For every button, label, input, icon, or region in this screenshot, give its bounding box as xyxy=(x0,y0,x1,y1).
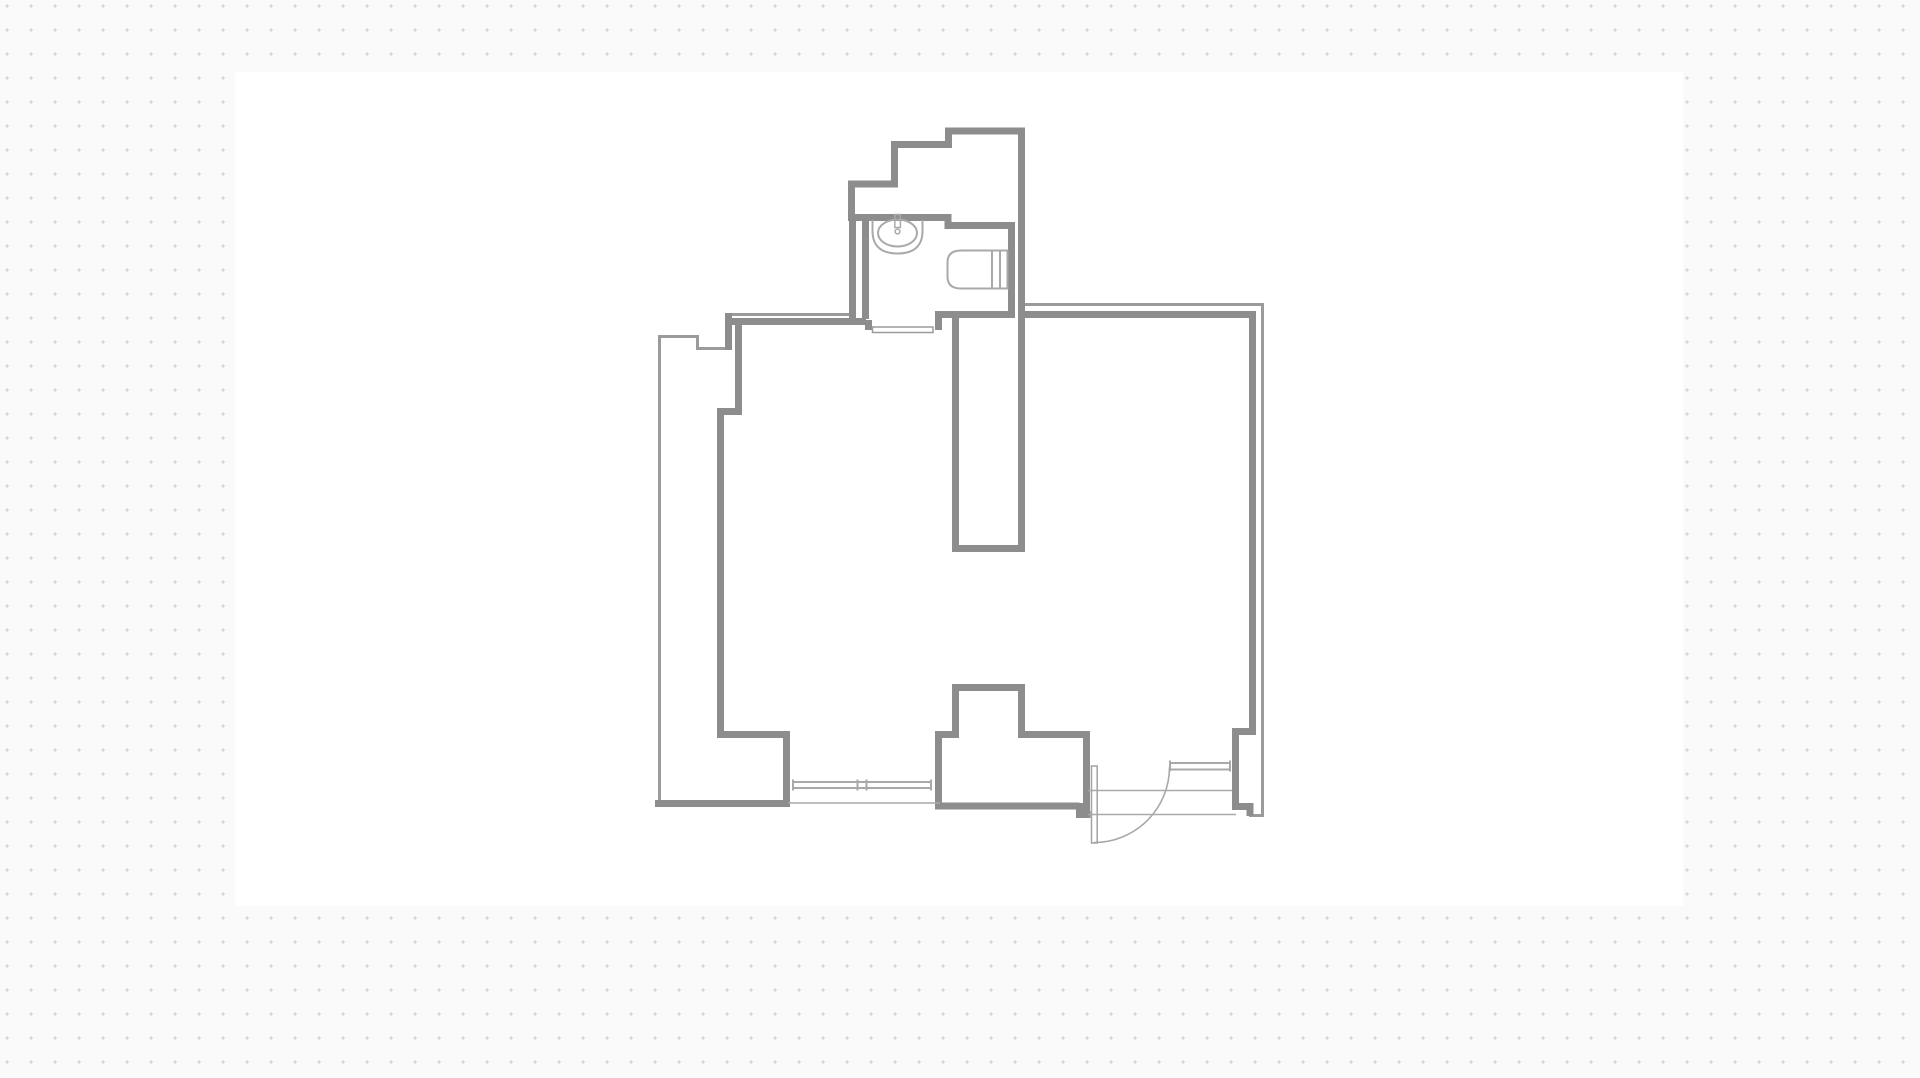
door-swing-arc[interactable] xyxy=(1094,767,1170,843)
door-leaf[interactable] xyxy=(1092,766,1098,843)
outer-boundary-bedroom[interactable] xyxy=(1020,305,1263,816)
sink-basin[interactable] xyxy=(878,220,917,247)
window-living[interactable] xyxy=(792,780,932,791)
wall-bedroom-right[interactable] xyxy=(1236,311,1253,816)
wall-living-interior-left[interactable] xyxy=(721,318,787,805)
sink-outer[interactable] xyxy=(873,220,923,254)
window-bedroom[interactable] xyxy=(1169,761,1231,772)
layer-walls-thick xyxy=(655,131,1253,816)
bath-door-threshold[interactable] xyxy=(873,327,934,333)
wall-top-stepped[interactable] xyxy=(852,131,1022,548)
layer-overlays xyxy=(873,327,1098,843)
floor-plan-drawing[interactable] xyxy=(0,0,1920,1078)
dotted-canvas-background xyxy=(0,0,1920,1078)
outer-boundary-left-notch[interactable] xyxy=(660,337,728,806)
bathtub-rim-lines[interactable] xyxy=(992,251,1000,289)
wall-entry-closet-block[interactable] xyxy=(956,688,1022,738)
layer-outer-boundaries xyxy=(660,305,1263,816)
layer-openings xyxy=(788,761,1236,843)
bathtub[interactable] xyxy=(948,251,1008,289)
door-opening-lines[interactable] xyxy=(1088,791,1236,815)
